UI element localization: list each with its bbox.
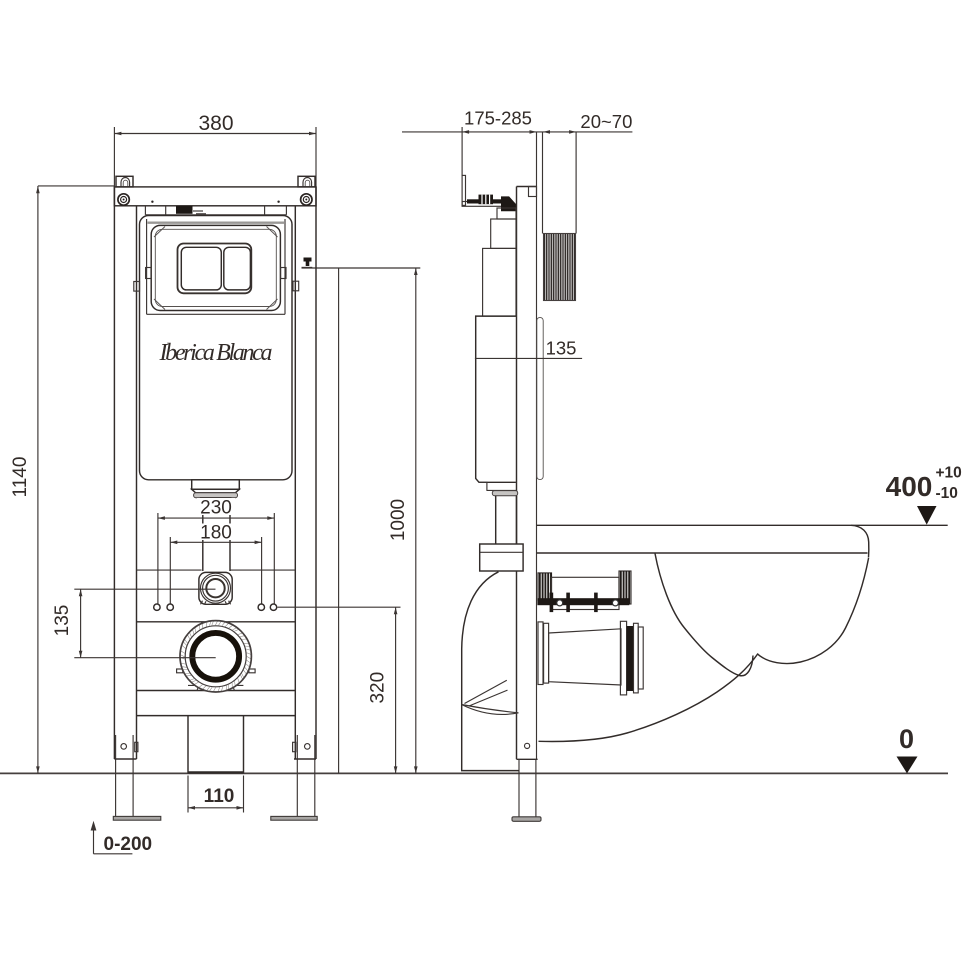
- svg-text:230: 230: [200, 498, 232, 519]
- svg-text:0-200: 0-200: [104, 834, 153, 855]
- svg-text:20~70: 20~70: [580, 111, 632, 132]
- svg-text:110: 110: [204, 786, 235, 807]
- svg-text:1000: 1000: [388, 499, 409, 541]
- svg-text:+10: +10: [936, 465, 962, 482]
- svg-text:320: 320: [368, 672, 389, 704]
- svg-text:180: 180: [200, 523, 232, 544]
- svg-text:175-285: 175-285: [464, 108, 532, 129]
- svg-text:380: 380: [198, 112, 233, 135]
- svg-text:1140: 1140: [10, 457, 31, 498]
- svg-text:135: 135: [546, 338, 577, 359]
- svg-text:-10: -10: [936, 485, 958, 502]
- svg-text:400: 400: [886, 471, 933, 502]
- svg-text:135: 135: [52, 605, 73, 637]
- svg-text:Iberica Blanca: Iberica Blanca: [159, 340, 273, 366]
- svg-text:0: 0: [899, 724, 914, 754]
